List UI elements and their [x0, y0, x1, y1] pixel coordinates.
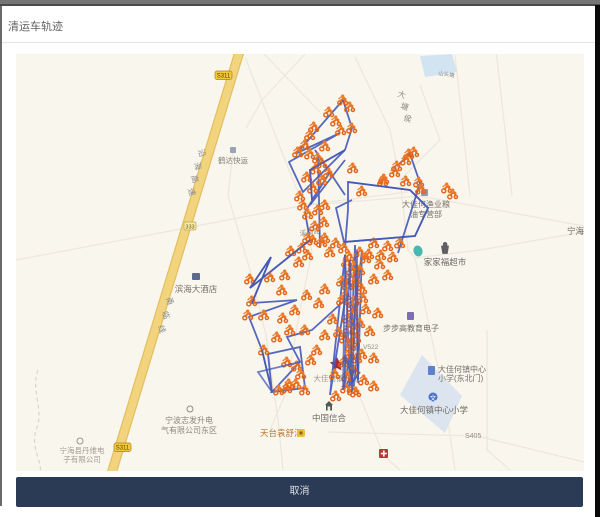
svg-text:S405: S405	[465, 433, 481, 440]
svg-text:宁波志发升电: 宁波志发升电	[165, 415, 213, 425]
svg-text:子有限公司: 子有限公司	[63, 454, 101, 464]
svg-text:文: 文	[430, 393, 437, 402]
svg-text:滨海大酒店: 滨海大酒店	[175, 284, 218, 294]
svg-text:大佳何渔业粮: 大佳何渔业粮	[402, 199, 450, 209]
svg-text:小学(东北门): 小学(东北门)	[438, 373, 484, 383]
svg-text:气有限公司东区: 气有限公司东区	[161, 425, 217, 435]
svg-text:步步高教育电子: 步步高教育电子	[383, 323, 439, 333]
svg-text:V522: V522	[363, 344, 379, 351]
svg-text:333: 333	[185, 225, 194, 231]
svg-text:大佳何镇中心小学: 大佳何镇中心小学	[400, 405, 469, 415]
svg-text:S311: S311	[116, 446, 130, 452]
svg-text:家家福超市: 家家福超市	[424, 257, 467, 267]
svg-text:宁海县丹维电: 宁海县丹维电	[60, 445, 105, 455]
svg-text:中国信合: 中国信合	[312, 413, 347, 423]
svg-text:鹤达快运: 鹤达快运	[218, 155, 248, 165]
svg-text:天台袁舒汤: 天台袁舒汤	[260, 428, 303, 438]
svg-text:宁海县: 宁海县	[567, 226, 584, 236]
svg-text:S311: S311	[217, 74, 231, 80]
svg-text:大佳何镇中心: 大佳何镇中心	[438, 364, 486, 374]
